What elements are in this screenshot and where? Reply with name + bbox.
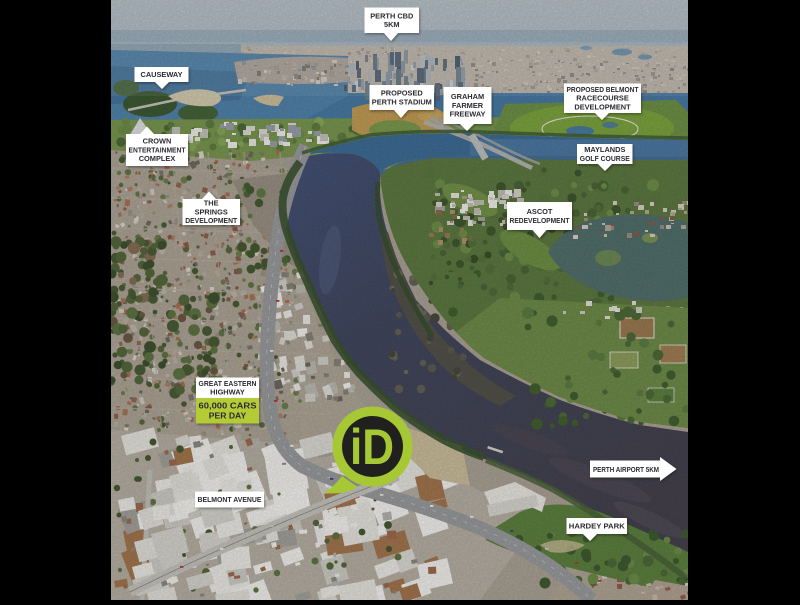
svg-text:CAUSEWAY: CAUSEWAY bbox=[140, 70, 182, 79]
svg-text:GRAHAM: GRAHAM bbox=[451, 92, 484, 101]
svg-text:REDEVELOPMENT: REDEVELOPMENT bbox=[510, 216, 570, 225]
svg-text:DEVELOPMENT: DEVELOPMENT bbox=[574, 102, 631, 111]
svg-text:PROPOSED BELMONT: PROPOSED BELMONT bbox=[567, 85, 639, 94]
svg-text:iD: iD bbox=[350, 419, 394, 475]
svg-text:PERTH STADIUM: PERTH STADIUM bbox=[372, 97, 432, 106]
svg-text:DEVELOPMENT: DEVELOPMENT bbox=[185, 216, 237, 225]
svg-text:PROPOSED: PROPOSED bbox=[381, 89, 424, 98]
svg-text:FREEWAY: FREEWAY bbox=[450, 110, 486, 119]
svg-text:ENTERTAINMENT: ENTERTAINMENT bbox=[129, 145, 186, 154]
svg-text:FARMER: FARMER bbox=[452, 101, 484, 110]
svg-text:GREAT EASTERN: GREAT EASTERN bbox=[199, 379, 257, 388]
svg-text:CROWN: CROWN bbox=[143, 137, 172, 146]
svg-text:BELMONT AVENUE: BELMONT AVENUE bbox=[198, 495, 262, 504]
svg-text:SPRINGS: SPRINGS bbox=[195, 207, 228, 216]
svg-text:MAYLANDS: MAYLANDS bbox=[584, 145, 625, 154]
svg-text:60,000 CARS: 60,000 CARS bbox=[199, 401, 257, 411]
svg-text:PERTH CBD: PERTH CBD bbox=[370, 11, 414, 20]
svg-text:PERTH AIRPORT 5KM: PERTH AIRPORT 5KM bbox=[593, 465, 659, 474]
svg-text:HIGHWAY: HIGHWAY bbox=[210, 388, 245, 397]
svg-text:COMPLEX: COMPLEX bbox=[139, 154, 176, 163]
svg-text:GOLF COURSE: GOLF COURSE bbox=[580, 154, 630, 163]
svg-text:HARDEY PARK: HARDEY PARK bbox=[569, 521, 626, 530]
svg-text:ASCOT: ASCOT bbox=[527, 207, 553, 216]
svg-text:THE: THE bbox=[204, 199, 219, 208]
svg-text:PER DAY: PER DAY bbox=[209, 411, 247, 421]
svg-text:5KM: 5KM bbox=[384, 20, 400, 29]
svg-text:RACECOURSE: RACECOURSE bbox=[576, 94, 629, 103]
